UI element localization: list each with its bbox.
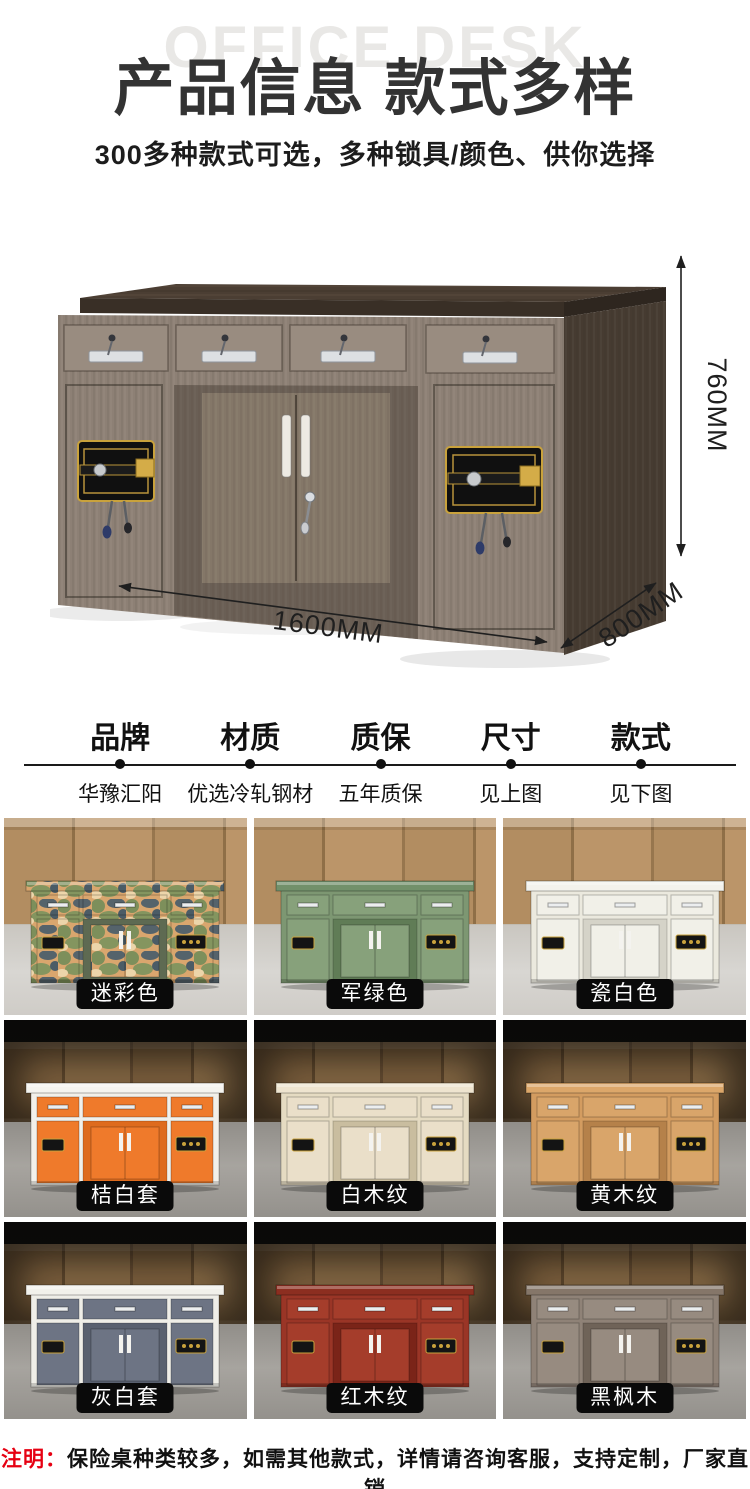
spec-item: 款式 见下图 — [576, 704, 706, 808]
style-label: 白木纹 — [326, 1181, 423, 1211]
style-desk-image — [24, 873, 226, 991]
style-card: 红木纹 — [254, 1222, 497, 1419]
style-label: 迷彩色 — [77, 979, 174, 1009]
style-desk-image — [524, 1075, 726, 1193]
style-card: 灰白套 — [4, 1222, 247, 1419]
style-label: 红木纹 — [326, 1383, 423, 1413]
spec-dot — [376, 759, 386, 769]
style-label: 黄木纹 — [576, 1181, 673, 1211]
header-section: OFFICE DESK 产品信息 款式多样 300多种款式可选，多种锁具/颜色、… — [0, 0, 750, 180]
style-desk-image — [524, 1277, 726, 1395]
style-label: 军绿色 — [326, 979, 423, 1009]
bottom-note: 注明：保险桌种类较多，如需其他款式，详情请咨询客服，支持定制，厂家直销 — [0, 1443, 750, 1489]
spec-label: 材质 — [185, 704, 315, 756]
dimension-annotations: 760MM 1600MM 800MM — [0, 180, 750, 690]
style-card: 黑枫木 — [503, 1222, 746, 1419]
spec-dot — [245, 759, 255, 769]
spec-label: 品牌 — [55, 704, 185, 756]
product-figure: 760MM 1600MM 800MM — [0, 180, 750, 690]
page-subtitle: 300多种款式可选，多种锁具/颜色、供你选择 — [0, 133, 750, 172]
product-detail-page: OFFICE DESK 产品信息 款式多样 300多种款式可选，多种锁具/颜色、… — [0, 0, 750, 1489]
style-desk-image — [24, 1075, 226, 1193]
style-grid: 迷彩色 军绿色 瓷白色 桔白套 白木纹 黄木纹 灰白套 红木纹 黑枫木 — [0, 818, 750, 1419]
spec-dot — [636, 759, 646, 769]
spec-strip-columns: 品牌 华豫汇阳 材质 优选冷轧钢材 质保 五年质保 尺寸 见上图 款式 见下图 — [55, 704, 706, 808]
spec-strip: 品牌 华豫汇阳 材质 优选冷轧钢材 质保 五年质保 尺寸 见上图 款式 见下图 — [0, 704, 750, 800]
spec-item: 尺寸 见上图 — [446, 704, 576, 808]
spec-value: 华豫汇阳 — [55, 778, 185, 808]
style-card: 瓷白色 — [503, 818, 746, 1015]
spec-value: 优选冷轧钢材 — [185, 778, 315, 808]
style-label: 黑枫木 — [576, 1383, 673, 1413]
spec-dot — [115, 759, 125, 769]
style-desk-image — [274, 1075, 476, 1193]
note-prefix: 注明： — [1, 1448, 67, 1471]
note-text: 保险桌种类较多，如需其他款式，详情请咨询客服，支持定制，厂家直销 — [67, 1448, 749, 1489]
style-card: 黄木纹 — [503, 1020, 746, 1217]
depth-dimension-label: 800MM — [593, 576, 689, 654]
page-title: 产品信息 款式多样 — [0, 38, 750, 127]
spec-value: 见上图 — [446, 778, 576, 808]
style-label: 桔白套 — [77, 1181, 174, 1211]
spec-label: 尺寸 — [446, 704, 576, 756]
style-label: 瓷白色 — [576, 979, 673, 1009]
style-card: 白木纹 — [254, 1020, 497, 1217]
style-card: 桔白套 — [4, 1020, 247, 1217]
spec-label: 款式 — [576, 704, 706, 756]
spec-item: 材质 优选冷轧钢材 — [185, 704, 315, 808]
spec-item: 品牌 华豫汇阳 — [55, 704, 185, 808]
style-desk-image — [274, 873, 476, 991]
spec-dot — [506, 759, 516, 769]
spec-value: 五年质保 — [315, 778, 445, 808]
width-dimension-label: 1600MM — [271, 605, 385, 649]
style-desk-image — [24, 1277, 226, 1395]
style-desk-image — [274, 1277, 476, 1395]
style-desk-image — [524, 873, 726, 991]
height-dimension-label: 760MM — [702, 357, 732, 452]
style-label: 灰白套 — [77, 1383, 174, 1413]
spec-value: 见下图 — [576, 778, 706, 808]
style-card: 迷彩色 — [4, 818, 247, 1015]
style-card: 军绿色 — [254, 818, 497, 1015]
spec-label: 质保 — [315, 704, 445, 756]
spec-item: 质保 五年质保 — [315, 704, 445, 808]
